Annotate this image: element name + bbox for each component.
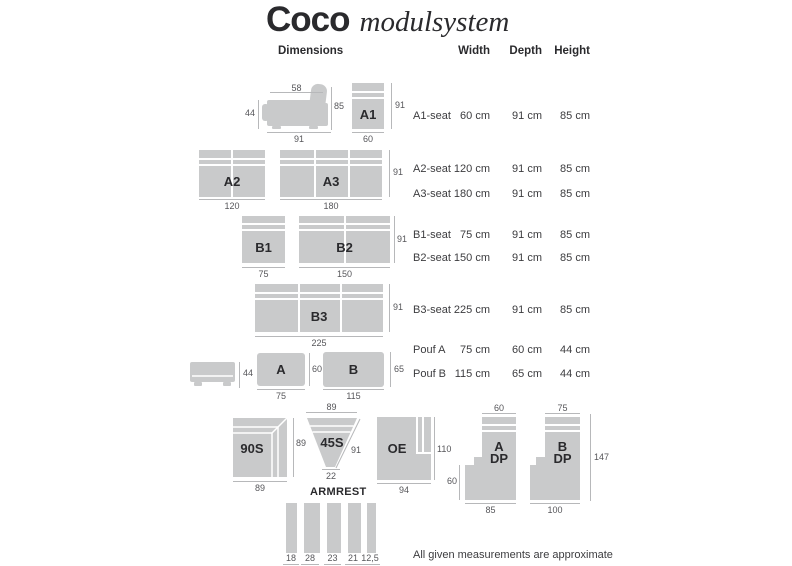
- module-a3-label: A3: [280, 166, 382, 197]
- armrest-width-label: 18: [283, 553, 299, 563]
- width-header: Width: [430, 45, 490, 57]
- module-90s-label: 90S: [236, 443, 268, 455]
- row-depth: 91 cm: [500, 163, 542, 175]
- dim-label: 58: [270, 83, 323, 93]
- row-height: 85 cm: [548, 188, 590, 200]
- dim-label: 22: [304, 471, 358, 481]
- dim-label: 91: [393, 302, 403, 312]
- row-height: 85 cm: [548, 252, 590, 264]
- armrest-bar: [348, 503, 361, 553]
- dim-label: 89: [306, 402, 357, 412]
- table-row: B3-seat 225 cm 91 cm 85 cm: [413, 304, 590, 317]
- module-b1: B1: [242, 216, 285, 263]
- module-b2-label: B2: [299, 232, 390, 263]
- dim-label: 89: [233, 483, 287, 493]
- module-45s-label: 45S: [316, 437, 348, 449]
- row-height: 85 cm: [548, 229, 590, 241]
- page-title: Coco modulsystem: [266, 0, 509, 40]
- dim-label: 60: [352, 134, 384, 144]
- dim-line: [257, 389, 305, 390]
- row-depth: 91 cm: [500, 110, 542, 122]
- dim-label: 91: [267, 134, 331, 144]
- module-pouf-a: A: [257, 353, 305, 386]
- module-a2: A2: [199, 150, 265, 197]
- dim-line: [391, 83, 392, 129]
- armrest-bar: [367, 503, 376, 553]
- table-row: B1-seat 75 cm 91 cm 85 cm: [413, 229, 590, 242]
- armrest-width-label: 23: [324, 553, 341, 563]
- table-row: Pouf B 115 cm 65 cm 44 cm: [413, 368, 590, 381]
- armrest-bar: [286, 503, 297, 553]
- dim-line: [306, 412, 357, 413]
- module-b2: B2: [299, 216, 390, 263]
- row-depth: 65 cm: [500, 368, 542, 380]
- dim-line: [255, 336, 383, 337]
- dim-label: 115: [323, 391, 384, 401]
- dim-label: 60: [312, 364, 322, 374]
- dim-label: 65: [394, 364, 404, 374]
- row-depth: 91 cm: [500, 229, 542, 241]
- dim-line: [459, 465, 460, 500]
- armrest-heading: ARMREST: [310, 486, 367, 498]
- module-a1-label: A1: [352, 99, 384, 129]
- dim-line: [309, 353, 310, 386]
- module-b3: B3: [255, 284, 383, 332]
- table-row: B2-seat 150 cm 91 cm 85 cm: [413, 252, 590, 265]
- dim-line: [482, 413, 516, 414]
- dim-label: 75: [257, 391, 305, 401]
- armrest-width-label: 21: [345, 553, 361, 563]
- module-b-dp-label-line2: DP: [553, 451, 571, 466]
- row-width: 75 cm: [430, 344, 490, 356]
- dim-label: 225: [255, 338, 383, 348]
- dim-label: 94: [377, 485, 431, 495]
- dim-line: [267, 132, 331, 133]
- dim-label: 85: [334, 101, 344, 111]
- dim-label: 180: [280, 201, 382, 211]
- armrest-width-label: 28: [301, 553, 319, 563]
- dim-line: [345, 564, 361, 565]
- dim-line: [322, 469, 340, 470]
- row-depth: 60 cm: [500, 344, 542, 356]
- dim-line: [280, 199, 382, 200]
- dim-label: 91: [351, 445, 361, 455]
- dim-label: 110: [437, 444, 451, 454]
- module-oe-label: OE: [377, 417, 417, 480]
- table-row: A2-seat 120 cm 91 cm 85 cm: [413, 163, 590, 176]
- module-pouf-b: B: [323, 352, 384, 387]
- module-oe: OE: [377, 417, 431, 480]
- module-b3-label: B3: [255, 300, 383, 332]
- row-width: 115 cm: [430, 368, 490, 380]
- module-a-dp-label-line2: DP: [490, 451, 508, 466]
- dim-label: 60: [447, 476, 457, 486]
- dim-line: [323, 389, 384, 390]
- row-width: 225 cm: [430, 304, 490, 316]
- row-width: 120 cm: [430, 163, 490, 175]
- dim-label: 91: [397, 234, 407, 244]
- module-a1: A1: [352, 83, 384, 129]
- dim-label: 120: [199, 201, 265, 211]
- brand-name: Coco: [266, 0, 350, 40]
- module-b-dp-label: B DP: [545, 441, 580, 465]
- dim-line: [299, 267, 390, 268]
- dim-label: 60: [482, 403, 516, 413]
- row-height: 44 cm: [548, 368, 590, 380]
- dim-line: [465, 503, 516, 504]
- dim-line: [199, 199, 265, 200]
- dim-line: [283, 564, 299, 565]
- dim-label: 75: [545, 403, 580, 413]
- dim-line: [242, 267, 285, 268]
- module-a-dp-label: A DP: [482, 441, 516, 465]
- row-depth: 91 cm: [500, 304, 542, 316]
- dim-line: [377, 483, 431, 484]
- row-width: 60 cm: [430, 110, 490, 122]
- dim-line: [389, 284, 390, 332]
- dim-line: [434, 417, 435, 480]
- row-depth: 91 cm: [500, 188, 542, 200]
- dim-line: [331, 87, 332, 130]
- dim-label: 147: [594, 452, 609, 462]
- armrest-width-label: 12,5: [360, 553, 380, 563]
- table-row: A1-seat 60 cm 91 cm 85 cm: [413, 110, 590, 123]
- pouf-side-view-diagram: [190, 360, 236, 389]
- row-height: 44 cm: [548, 344, 590, 356]
- armrest-bar: [327, 503, 341, 553]
- dim-label: 44: [245, 108, 255, 118]
- dim-label: 100: [530, 505, 580, 515]
- row-height: 85 cm: [548, 163, 590, 175]
- depth-header: Depth: [500, 45, 542, 57]
- dim-line: [258, 100, 259, 129]
- table-row: A3-seat 180 cm 91 cm 85 cm: [413, 188, 590, 201]
- dim-label: 44: [243, 368, 253, 378]
- dim-label: 150: [299, 269, 390, 279]
- dim-line: [233, 481, 287, 482]
- module-a3: A3: [280, 150, 382, 197]
- dim-label: 91: [393, 167, 403, 177]
- dimensions-heading: Dimensions: [278, 45, 343, 57]
- dim-line: [301, 564, 319, 565]
- dim-line: [394, 216, 395, 263]
- module-b1-label: B1: [242, 232, 285, 263]
- module-a2-label: A2: [199, 166, 265, 197]
- dim-line: [545, 413, 580, 414]
- module-pouf-a-label: A: [257, 353, 305, 386]
- dim-label: 75: [242, 269, 285, 279]
- spec-sheet-page: Coco modulsystem Dimensions Width Depth …: [0, 0, 792, 566]
- row-width: 75 cm: [430, 229, 490, 241]
- dim-line: [389, 150, 390, 197]
- row-width: 150 cm: [430, 252, 490, 264]
- dim-line: [390, 352, 391, 387]
- dim-line: [360, 564, 380, 565]
- dim-line: [324, 564, 341, 565]
- footnote: All given measurements are approximate: [413, 549, 613, 561]
- dim-line: [530, 503, 580, 504]
- dim-line: [352, 132, 384, 133]
- table-row: Pouf A 75 cm 60 cm 44 cm: [413, 344, 590, 357]
- row-height: 85 cm: [548, 110, 590, 122]
- dim-line: [239, 362, 240, 388]
- dim-line: [590, 414, 591, 501]
- dim-label: 91: [395, 100, 405, 110]
- row-height: 85 cm: [548, 304, 590, 316]
- dim-label: 85: [465, 505, 516, 515]
- module-pouf-b-label: B: [323, 352, 384, 387]
- brand-suffix: modulsystem: [360, 6, 510, 39]
- table-header-row: Width Depth Height: [413, 45, 590, 58]
- dim-line: [293, 418, 294, 477]
- height-header: Height: [548, 45, 590, 57]
- row-width: 180 cm: [430, 188, 490, 200]
- row-depth: 91 cm: [500, 252, 542, 264]
- armrest-bar: [304, 503, 320, 553]
